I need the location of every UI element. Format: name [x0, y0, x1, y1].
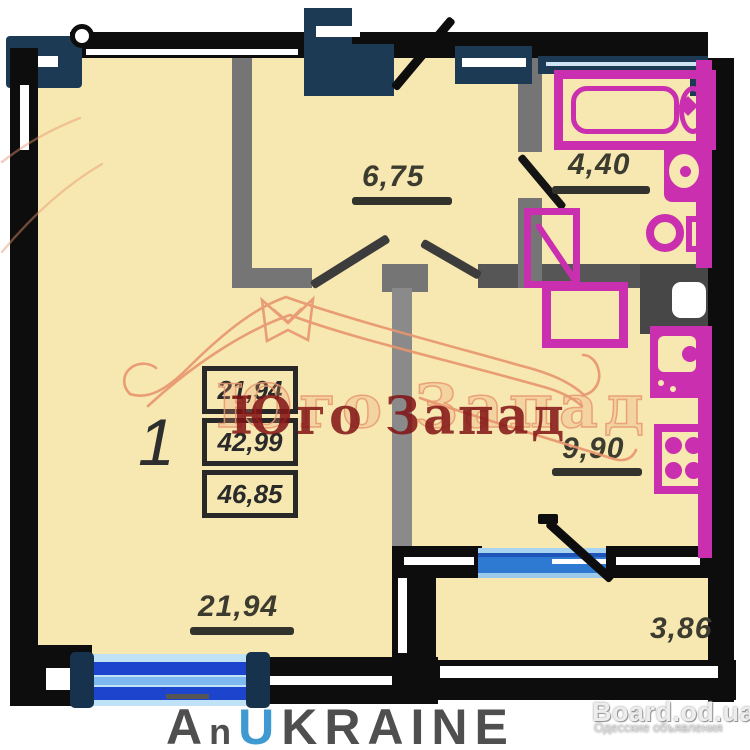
portal-letter-a: A [166, 694, 209, 750]
agency-watermark: Юго Запад [230, 385, 567, 446]
portal-letter-n: n [209, 711, 238, 750]
portal-letter-u: U [238, 699, 281, 750]
board-tagline: Одесские объявления [594, 721, 723, 735]
portal-logo: AnUKRAINE [166, 702, 515, 750]
portal-letters-rest: KRAINE [281, 699, 515, 750]
floor-plan: 6,75 4,40 9,90 21,94 3,86 1 21,94 42,99 … [0, 0, 750, 750]
